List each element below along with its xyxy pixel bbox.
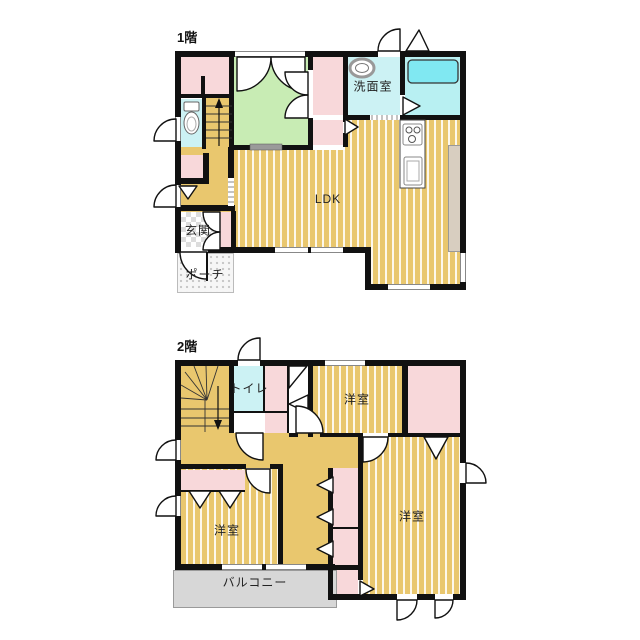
- door-leaf-triangle: [289, 395, 308, 413]
- floor-plan-canvas: 1階 洗面室 LDK 玄関 ポーチ 2階 トイレ 洋室 洋室 洋室 バルコニー: [0, 0, 640, 640]
- wall-segment: [265, 411, 287, 413]
- f2-closet-topright: [408, 366, 460, 433]
- door-leaf-triangle: [289, 366, 307, 388]
- floor1-title: 1階: [177, 27, 197, 46]
- wall-segment: [228, 147, 234, 178]
- label-balcony: バルコニー: [223, 574, 288, 591]
- wall-segment: [333, 527, 358, 529]
- f1-room-green: [234, 57, 308, 145]
- wall-segment: [278, 464, 283, 570]
- casement-window-arc: [238, 338, 260, 360]
- label-porch: ポーチ: [185, 266, 224, 283]
- f1-room-toilet: [181, 99, 202, 147]
- wall-segment: [229, 51, 234, 152]
- casement-window-arc: [156, 440, 176, 460]
- wall-segment: [177, 178, 209, 184]
- f1-room-storage-topleft: [181, 57, 229, 94]
- casement-window-arc: [435, 600, 453, 618]
- wall-segment: [203, 153, 209, 181]
- f1-room-bath: [405, 57, 460, 115]
- casement-window-arc: [154, 119, 176, 141]
- door-leaf-triangle: [406, 30, 429, 51]
- wall-segment: [175, 360, 466, 366]
- wall-segment: [202, 96, 206, 149]
- wall-segment: [402, 360, 408, 437]
- wall-segment: [400, 51, 405, 95]
- wall-segment: [175, 464, 246, 469]
- f1-closet-strip-upper: [313, 57, 343, 115]
- casement-window-arc: [397, 600, 417, 620]
- wall-segment: [177, 205, 235, 211]
- door-arc: [378, 29, 400, 51]
- label-bedroom-left: 洋室: [214, 522, 240, 539]
- wall-segment: [289, 433, 298, 437]
- window: [175, 440, 181, 460]
- label-toilet: トイレ: [229, 380, 268, 397]
- wall-segment: [343, 51, 348, 122]
- wall-segment: [388, 433, 466, 437]
- window: [311, 247, 343, 253]
- door-opening: [378, 51, 400, 57]
- wall-segment: [308, 360, 313, 437]
- door-opening: [238, 360, 260, 366]
- wall-segment: [234, 411, 265, 413]
- door-opening: [370, 115, 400, 120]
- wall-segment: [181, 94, 233, 98]
- window: [222, 564, 262, 570]
- wall-segment: [181, 490, 245, 492]
- door-opening: [228, 178, 234, 206]
- window: [325, 360, 365, 366]
- door-opening: [400, 95, 405, 115]
- f2-closet-column-1: [333, 468, 358, 527]
- door-opening: [308, 70, 313, 118]
- f2-stairs: [181, 366, 229, 433]
- window: [175, 185, 181, 207]
- door-opening: [460, 463, 466, 483]
- f1-hall-closet: [181, 155, 203, 178]
- casement-window-arc: [466, 463, 486, 483]
- wall-segment: [231, 211, 236, 250]
- wall-segment: [229, 360, 234, 433]
- wall-segment: [343, 115, 466, 120]
- label-bedroom-right: 洋室: [399, 508, 425, 525]
- wall-segment: [229, 145, 313, 150]
- window: [460, 253, 466, 282]
- wall-segment: [343, 133, 348, 147]
- label-bedroom-top: 洋室: [344, 391, 370, 408]
- f2-bedroom-left-closet: [181, 470, 245, 490]
- casement-window-arc: [154, 185, 176, 207]
- floor2-title: 2階: [177, 336, 197, 355]
- f1-entrance-cabinet: [220, 212, 231, 250]
- wall-segment: [287, 363, 289, 433]
- casement-window-arc: [156, 496, 176, 516]
- f2-closet-column-2: [333, 529, 358, 565]
- f2-closet-strip-lower: [265, 413, 287, 433]
- door-opening: [435, 594, 453, 600]
- window: [275, 247, 308, 253]
- f1-closet-strip-lower: [313, 120, 343, 145]
- label-washroom: 洗面室: [353, 78, 392, 95]
- label-entrance: 玄関: [185, 222, 211, 239]
- wall-segment: [328, 468, 333, 600]
- door-opening: [397, 594, 417, 600]
- window: [235, 51, 305, 57]
- window: [175, 496, 181, 516]
- wall-segment: [175, 51, 181, 253]
- wall-segment: [320, 433, 363, 437]
- wall-segment: [333, 565, 358, 570]
- wall-segment: [201, 76, 205, 96]
- wall-segment: [358, 437, 363, 580]
- window: [175, 117, 181, 141]
- wall-segment: [175, 51, 466, 57]
- door-opening: [181, 247, 208, 253]
- window: [266, 564, 306, 570]
- window: [388, 284, 430, 290]
- label-ldk: LDK: [315, 192, 341, 206]
